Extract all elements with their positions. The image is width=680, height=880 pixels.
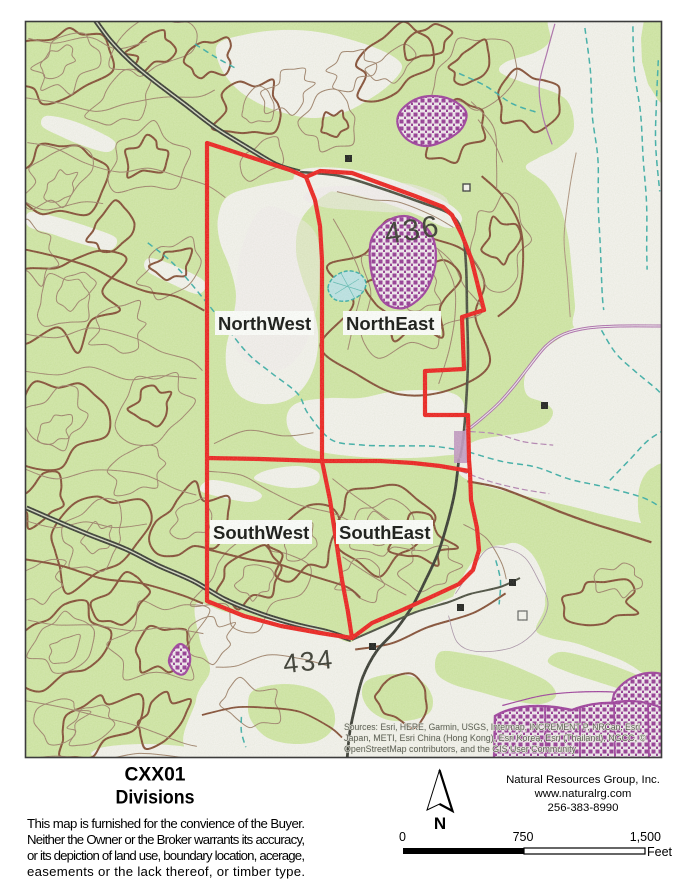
- svg-text:Natural Resources Group, Inc.: Natural Resources Group, Inc.: [506, 774, 660, 786]
- svg-text:1,500: 1,500: [630, 830, 661, 844]
- svg-text:N: N: [434, 814, 446, 833]
- svg-text:easements or the lack thereof,: easements or the lack thereof, or timber…: [27, 864, 305, 879]
- svg-text:www.naturalrg.com: www.naturalrg.com: [534, 788, 632, 800]
- svg-text:0: 0: [399, 830, 406, 844]
- svg-text:This map is furnished for the: This map is furnished for the convience …: [27, 816, 305, 831]
- svg-text:CXX01: CXX01: [125, 765, 186, 786]
- svg-text:256-383-8990: 256-383-8990: [548, 802, 619, 814]
- svg-text:Feet: Feet: [647, 845, 673, 859]
- svg-text:750: 750: [513, 830, 534, 844]
- svg-text:Neither the Owner or the Broke: Neither the Owner or the Broker warrants…: [27, 832, 305, 847]
- svg-text:Divisions: Divisions: [116, 788, 195, 809]
- svg-text:or its depiction of land use,: or its depiction of land use, boundary l…: [27, 848, 305, 863]
